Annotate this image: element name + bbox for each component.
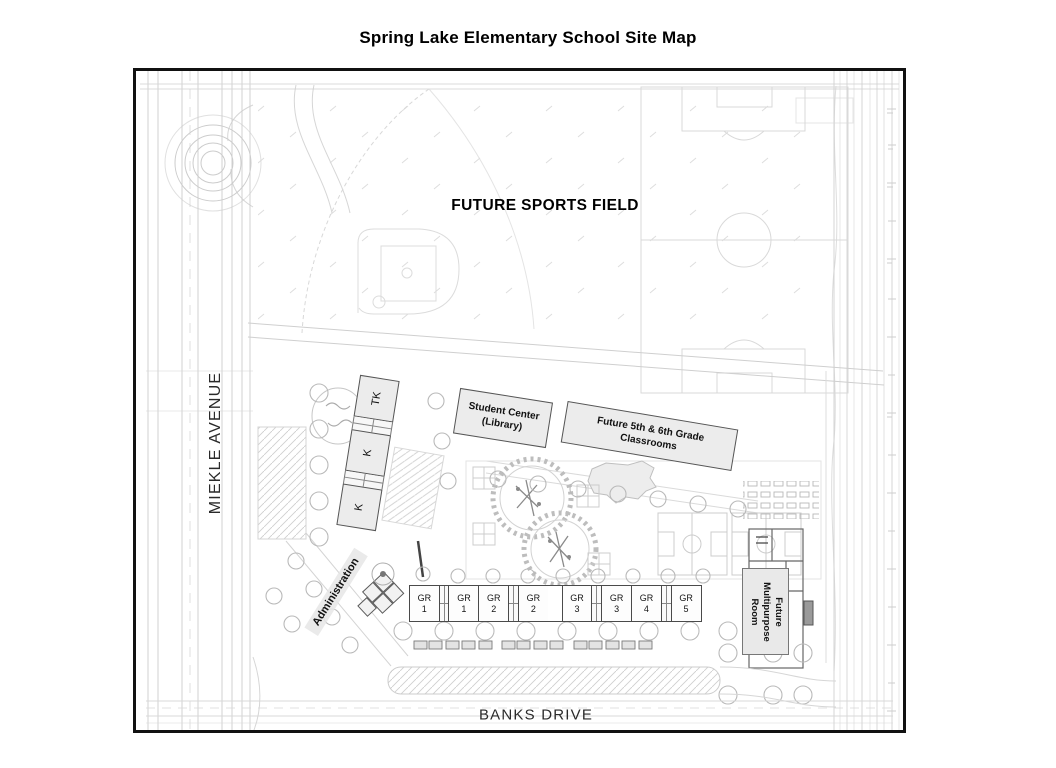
gr-room-num: 2 — [531, 604, 536, 614]
building-gr-classroom-row: GR 1 GR 1 GR 2 GR 2 GR 3 — [410, 585, 702, 622]
gr-room: GR 2 — [478, 585, 509, 622]
street-label-banks-drive: BANKS DRIVE — [479, 707, 593, 724]
room-k-upper-label: K — [361, 448, 374, 457]
gr-room: GR 3 — [562, 585, 593, 622]
future-multipurpose-room-label: Future Multipurpose Room — [748, 572, 784, 652]
building-future-multipurpose-room: Future Multipurpose Room — [742, 568, 789, 655]
room-k-lower: K — [336, 483, 382, 531]
gr-room: GR 4 — [631, 585, 662, 622]
area-label-future-sports-field: FUTURE SPORTS FIELD — [451, 197, 639, 215]
gr-room-abbr: GR — [527, 593, 541, 603]
gr-room-abbr: GR — [679, 593, 693, 603]
room-tk-label: TK — [370, 391, 384, 407]
gr-room-abbr: GR — [610, 593, 624, 603]
page: Spring Lake Elementary School Site Map — [0, 0, 1056, 768]
gr-breezeway — [548, 585, 563, 622]
gr-room: GR 2 — [518, 585, 549, 622]
gr-room: GR 3 — [601, 585, 632, 622]
gr-room: GR 5 — [671, 585, 702, 622]
gr-room-num: 1 — [422, 604, 427, 614]
gr-room-abbr: GR — [418, 593, 432, 603]
gr-room-abbr: GR — [570, 593, 584, 603]
street-label-miekle-avenue: MIEKLE AVENUE — [207, 372, 225, 514]
site-map: MIEKLE AVENUE BANKS DRIVE FUTURE SPORTS … — [133, 68, 906, 733]
gr-room-num: 4 — [644, 604, 649, 614]
gr-room: GR 1 — [448, 585, 479, 622]
gr-room-num: 1 — [461, 604, 466, 614]
gr-room-num: 2 — [491, 604, 496, 614]
gr-room-abbr: GR — [457, 593, 471, 603]
gr-room-num: 3 — [614, 604, 619, 614]
gr-room-num: 3 — [574, 604, 579, 614]
gr-room-abbr: GR — [640, 593, 654, 603]
gr-room-abbr: GR — [487, 593, 501, 603]
page-title: Spring Lake Elementary School Site Map — [0, 28, 1056, 48]
room-k-lower-label: K — [353, 503, 366, 512]
gr-room: GR 1 — [409, 585, 440, 622]
room-tk: TK — [354, 375, 400, 423]
gr-room-num: 5 — [684, 604, 689, 614]
room-k-upper: K — [345, 429, 391, 477]
